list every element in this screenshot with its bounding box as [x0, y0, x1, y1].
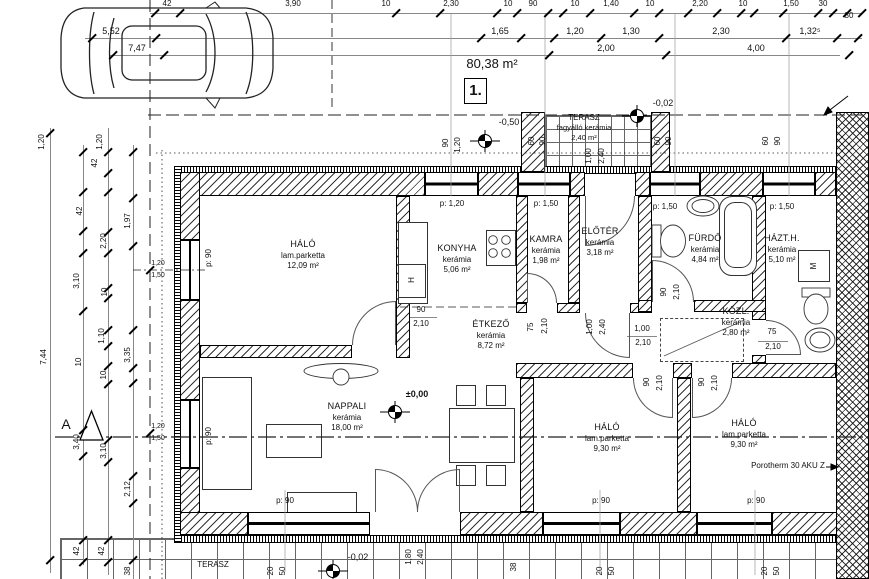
party-wall [836, 112, 869, 579]
dim-terrace: 90 [774, 137, 782, 146]
door-dim: 2,10 [413, 320, 429, 328]
dim-top: 42 [163, 0, 172, 8]
window-label: p: 90 [592, 497, 610, 505]
window-label: p: 1,50 [770, 203, 794, 211]
dim-top: 2,00 [597, 44, 615, 53]
dim-left: 42 [98, 547, 106, 556]
wall-segment [638, 196, 652, 310]
dim-left: 10 [75, 358, 83, 367]
dim-left: 7,44 [40, 349, 48, 365]
dim-top: 5,52 [102, 27, 120, 36]
door-dim: 2,10 [635, 339, 651, 347]
dim-bottom: 50 [279, 567, 287, 576]
dim-top: 1,32⁵ [799, 27, 820, 36]
french-door-left [375, 469, 418, 512]
room-label-halo2: HÁLÓ lam.parketta 9,30 m² [585, 422, 629, 454]
door-dim: 2,10 [765, 343, 781, 351]
window-label: p: 90 [205, 427, 213, 445]
coffee-table [266, 424, 322, 458]
dim-left: 2,12 [124, 481, 132, 497]
dim-line [85, 38, 862, 39]
dim-terrace: 1,00 [585, 148, 593, 164]
dim-top: 1,50 [783, 0, 799, 8]
dim-left: 3,40 [73, 434, 81, 450]
dim-bottom: 1,80 [405, 549, 413, 565]
dim-left: 1,20 [96, 134, 104, 150]
door-dim: 2,10 [673, 284, 681, 300]
window [697, 512, 772, 535]
door-bedroom1 [352, 301, 396, 345]
wall-type-note: Porotherm 30 AKU Z [751, 462, 825, 470]
dim-line [627, 336, 657, 337]
dim-top: 10 [382, 0, 391, 8]
dim-left: 1,10 [98, 328, 106, 344]
dim-top: 10 [739, 0, 748, 8]
dim-bottom: 20 [596, 567, 604, 576]
dim-top: 3,90 [285, 0, 301, 8]
dim-left: 3,10 [100, 443, 108, 459]
dim-top: 2,20 [692, 0, 708, 8]
door-dim: 75 [527, 323, 535, 332]
dim-top: 4,00 [747, 44, 765, 53]
wall-segment [732, 363, 836, 378]
dim-line [150, 13, 862, 14]
sill-level: 1,50 [151, 272, 165, 279]
wall-segment [520, 378, 534, 512]
dim-top: 30 [845, 12, 854, 20]
door-dim: 2,10 [541, 318, 549, 334]
plan-number-badge: 1. [464, 78, 487, 104]
wall-segment [180, 512, 248, 535]
window [425, 172, 478, 196]
wall-segment [638, 300, 652, 312]
door-bedroom2 [633, 378, 673, 418]
dim-top: 30 [819, 0, 828, 8]
dim-tick [845, 51, 854, 60]
dim-top: 2,30 [712, 27, 730, 36]
dim-line [133, 145, 134, 579]
tv-bench [287, 492, 357, 514]
door-dim: 75 [768, 328, 777, 336]
wall-segment [180, 172, 200, 240]
door-pantry [527, 273, 557, 303]
room-label-kozl: KÖZL. kerámia 2,80 m² [722, 306, 750, 338]
window-label: p: 90 [747, 497, 765, 505]
dim-left: 10 [101, 288, 109, 297]
french-door-right [417, 469, 460, 512]
room-label-furdo: FÜRDŐ kerámia 4,84 m² [689, 233, 722, 265]
window [543, 512, 620, 535]
dim-top: 7,47 [128, 44, 146, 53]
sill-level: 1,20 [151, 423, 165, 430]
dining-table [449, 408, 515, 463]
window-label: p: 90 [276, 497, 294, 505]
door-dim: 90 [417, 306, 426, 314]
wall-segment [516, 363, 633, 378]
wall-segment [557, 303, 580, 313]
dim-terrace: 90 [539, 137, 547, 146]
dim-terrace: 60 [528, 137, 536, 146]
dim-line [50, 128, 51, 573]
room-label-halo1: HÁLÓ lam.parketta 12,09 m² [281, 239, 325, 271]
wall-segment [570, 172, 585, 196]
door-dim: 2,10 [711, 375, 719, 391]
dim-terrace: 1,20 [454, 137, 462, 153]
floor-plan-canvas: 80,38 m² 1. 42 3,90 10 2,30 10 90 10 1,4… [0, 0, 869, 579]
dim-bottom: 20 [761, 567, 769, 576]
terrace-bottom-tiles [60, 538, 869, 579]
wall-segment [673, 363, 692, 378]
dim-terrace: 90 [665, 137, 673, 146]
door-dim: 1,00 [634, 325, 650, 333]
door-dim: 2,10 [656, 375, 664, 391]
dim-bottom: 50 [773, 567, 781, 576]
dim-bottom: 20 [267, 567, 275, 576]
dim-top: 1,65 [491, 27, 509, 36]
level-terrace-bottom: -0,02 [348, 553, 369, 562]
sill-level: 1,50 [151, 435, 165, 442]
room-label-eloter: ELŐTÉR kerámia 3,18 m² [581, 226, 618, 258]
dim-top: 1,20 [566, 27, 584, 36]
window [650, 172, 700, 196]
bathtub-inner [724, 202, 752, 268]
washer-letter: M [810, 263, 818, 270]
room-label-terasz-bottom: TERASZ [197, 561, 229, 569]
wall-segment [200, 345, 352, 358]
dim-top: 1,40 [603, 0, 619, 8]
dim-left: 2,20 [100, 233, 108, 249]
wall-segment [620, 512, 697, 535]
wall-segment [752, 355, 766, 363]
dim-left: 1,20 [38, 134, 46, 150]
room-label-hazth: HÁZT.H. kerámia 5,10 m² [764, 233, 799, 265]
wall-segment [180, 300, 200, 400]
wall-segment [815, 172, 836, 196]
chair [486, 465, 506, 486]
dim-top: 10 [571, 0, 580, 8]
door-dim: 2,40 [599, 319, 607, 335]
dim-left: 42 [91, 159, 99, 168]
window [763, 172, 815, 196]
dim-bottom: 50 [608, 567, 616, 576]
dim-terrace: 2,40 [598, 148, 606, 164]
window [248, 512, 370, 535]
door-dim: 90 [698, 378, 706, 387]
section-letter: A [61, 417, 70, 431]
dim-top: 2,30 [443, 0, 459, 8]
window-label: p: 1,50 [653, 203, 677, 211]
window [180, 400, 200, 468]
level-terrace-top: -0,50 [499, 118, 520, 127]
room-label-nappali: NAPPALI kerámia 18,00 m² [328, 401, 367, 433]
tv-icon [304, 364, 378, 386]
wall-segment [460, 512, 543, 535]
stove [486, 230, 516, 266]
dim-left: 3,10 [73, 273, 81, 289]
wall-segment [700, 172, 763, 196]
room-label-kamra: KAMRA kerámia 1,98 m² [529, 234, 562, 266]
sill-level: 1,20 [151, 260, 165, 267]
window-label: p: 1,50 [534, 200, 558, 208]
dim-terrace: 60 [654, 137, 662, 146]
wall-segment [478, 172, 518, 196]
dim-terrace: 90 [442, 139, 450, 148]
dim-top: 90 [529, 0, 538, 8]
chair [456, 385, 476, 406]
fridge-letter: H [408, 277, 416, 283]
wall-segment [568, 196, 580, 303]
room-label-konyha: KONYHA kerámia 5,06 m² [437, 243, 476, 275]
door-dim: 90 [660, 288, 668, 297]
dim-top: 1,30 [622, 27, 640, 36]
chair [486, 385, 506, 406]
wall-segment [180, 172, 425, 196]
dim-line [108, 128, 109, 575]
dim-left: 42 [73, 547, 81, 556]
dim-left: 42 [76, 207, 84, 216]
door-dim: 1,00 [586, 319, 594, 335]
window [180, 240, 200, 300]
dim-top: 10 [504, 0, 513, 8]
total-area-label: 80,38 m² [466, 57, 517, 70]
dim-left: 3,35 [124, 347, 132, 363]
wall-segment [516, 303, 527, 313]
wall-segment [635, 172, 650, 196]
window-label: p: 1,20 [440, 200, 464, 208]
dim-left: 38 [124, 567, 132, 576]
wall-segment [677, 378, 691, 512]
room-label-terasz-top: TERASZ fagyálló kerámia 2,40 m² [557, 113, 612, 143]
dim-bottom: 38 [510, 563, 518, 572]
level-eaves: -0,02 [653, 99, 674, 108]
room-label-etkezo: ÉTKEZŐ kerámia 8,72 m² [472, 319, 509, 351]
level-main: ±0,00 [406, 390, 428, 399]
window-label: p: 90 [205, 249, 213, 267]
dim-top: 10 [646, 0, 655, 8]
room-label-halo3: HÁLÓ lam.parketta 9,30 m² [722, 418, 766, 450]
dim-bottom: 2,40 [417, 549, 425, 565]
door-dim: 90 [643, 378, 651, 387]
window [518, 172, 570, 196]
dim-left: 10 [100, 371, 108, 380]
dim-left: 1,97 [124, 213, 132, 229]
insulation-strip [180, 535, 869, 543]
dim-terrace: 60 [762, 137, 770, 146]
